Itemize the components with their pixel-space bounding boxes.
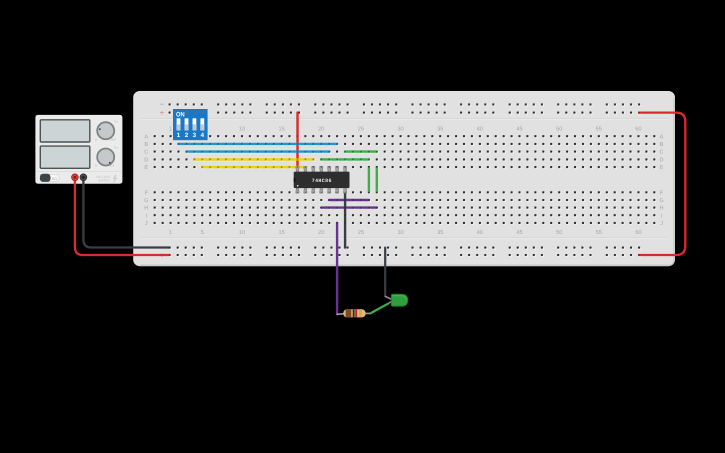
svg-text:F: F: [145, 190, 149, 196]
svg-text:55: 55: [596, 230, 602, 236]
svg-text:A: A: [660, 134, 664, 140]
svg-text:H: H: [144, 206, 148, 212]
svg-text:A: A: [144, 134, 148, 140]
svg-text:5 A: 5 A: [110, 164, 114, 168]
svg-text:30 V: 30 V: [110, 137, 116, 141]
svg-text:D: D: [144, 158, 148, 164]
svg-text:60: 60: [635, 230, 641, 236]
svg-text:ON: ON: [176, 112, 185, 119]
svg-text:25: 25: [358, 126, 364, 132]
svg-text:C: C: [144, 150, 148, 156]
svg-text:J: J: [145, 221, 148, 227]
svg-text:I/O: I/O: [52, 177, 57, 181]
svg-text:E: E: [660, 165, 664, 171]
svg-text:30: 30: [397, 230, 403, 236]
svg-text:G: G: [144, 198, 148, 204]
svg-text:10: 10: [239, 126, 245, 132]
svg-text:40: 40: [477, 230, 483, 236]
svg-text:B: B: [144, 142, 148, 148]
svg-text:45: 45: [516, 126, 522, 132]
svg-text:74HC86: 74HC86: [312, 178, 332, 184]
svg-text:↻+: ↻+: [114, 146, 118, 150]
svg-text:J: J: [660, 221, 663, 227]
svg-text:20: 20: [318, 230, 324, 236]
svg-text:D: D: [659, 158, 663, 164]
svg-text:35: 35: [437, 126, 443, 132]
svg-text:15: 15: [278, 126, 284, 132]
svg-text:4: 4: [201, 132, 205, 139]
svg-text:25: 25: [358, 230, 364, 236]
svg-text:B: B: [660, 142, 664, 148]
svg-text:5: 5: [201, 230, 204, 236]
svg-text:C: C: [659, 150, 663, 156]
svg-text:H: H: [659, 206, 663, 212]
svg-text:50: 50: [556, 230, 562, 236]
svg-text:35: 35: [437, 230, 443, 236]
svg-text:40: 40: [477, 126, 483, 132]
svg-text:3: 3: [193, 132, 197, 139]
svg-text:50: 50: [556, 126, 562, 132]
svg-text:SUPPLY: SUPPLY: [98, 179, 110, 183]
svg-text:1: 1: [169, 230, 172, 236]
svg-text:10: 10: [239, 230, 245, 236]
svg-text:15: 15: [278, 230, 284, 236]
svg-text:1: 1: [169, 126, 172, 132]
svg-text:↻+: ↻+: [114, 119, 118, 123]
svg-text:1: 1: [177, 132, 181, 139]
svg-text:30: 30: [397, 126, 403, 132]
svg-text:20: 20: [318, 126, 324, 132]
svg-text:E: E: [144, 165, 148, 171]
svg-text:55: 55: [596, 126, 602, 132]
svg-text:G: G: [659, 198, 663, 204]
svg-text:45: 45: [516, 230, 522, 236]
svg-text:60: 60: [635, 126, 641, 132]
svg-text:−: −: [160, 101, 164, 108]
svg-text:F: F: [660, 190, 664, 196]
svg-text:+: +: [160, 110, 164, 117]
svg-text:2: 2: [185, 132, 189, 139]
